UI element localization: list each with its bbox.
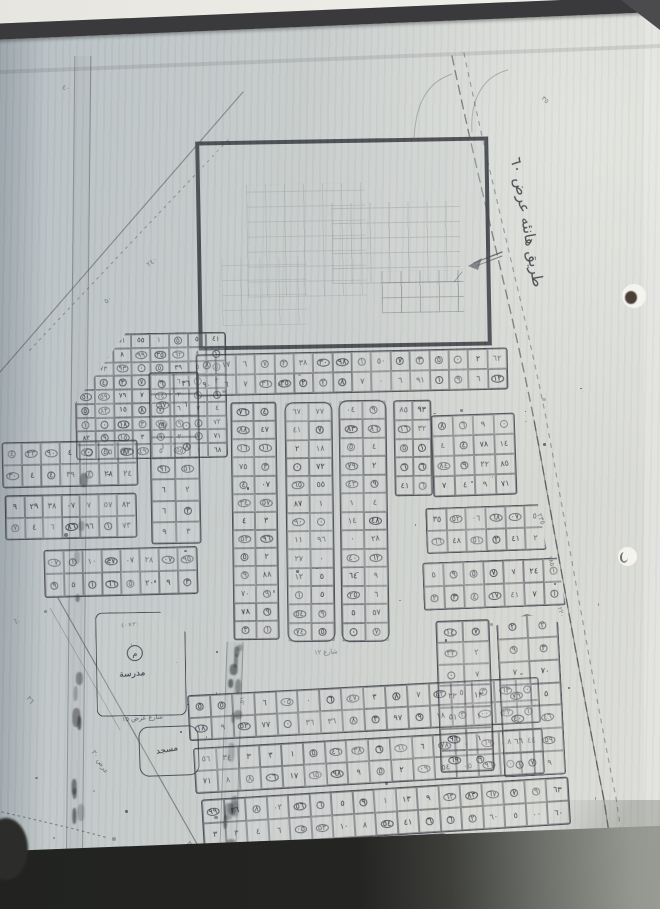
ink-speck bbox=[154, 580, 156, 583]
ink-speck bbox=[296, 570, 299, 573]
ink-speck bbox=[206, 736, 207, 738]
ink-specks-layer bbox=[0, 0, 660, 909]
ink-speck bbox=[112, 837, 116, 841]
ink-speck bbox=[460, 409, 463, 412]
ink-speck bbox=[433, 413, 436, 414]
ink-speck bbox=[131, 643, 132, 647]
ink-speck bbox=[216, 651, 218, 653]
ink-speck bbox=[356, 572, 359, 573]
ink-speck bbox=[471, 481, 473, 483]
ink-speck bbox=[580, 388, 582, 389]
ink-speck bbox=[385, 782, 388, 785]
scanned-subdivision-plan-photo: م مدرسة شارع عرض ١٥ مسجد طريق هانئه عرض … bbox=[0, 0, 660, 909]
ink-speck bbox=[525, 421, 527, 422]
ink-speck bbox=[93, 790, 95, 792]
ink-speck bbox=[492, 476, 493, 478]
ink-speck bbox=[445, 639, 447, 642]
ink-speck bbox=[273, 590, 275, 593]
punch-hole-top bbox=[622, 284, 646, 308]
ink-speck bbox=[415, 524, 416, 526]
ink-speck bbox=[222, 390, 226, 393]
ink-speck bbox=[520, 673, 523, 675]
ink-speck bbox=[44, 610, 47, 613]
ink-speck bbox=[216, 692, 217, 695]
ink-speck bbox=[107, 474, 110, 475]
ink-speck bbox=[247, 487, 249, 490]
ink-speck bbox=[525, 411, 526, 412]
ink-speck bbox=[542, 398, 546, 401]
punch-hole-bottom bbox=[618, 547, 637, 566]
ink-speck bbox=[109, 559, 111, 561]
ink-speck bbox=[543, 443, 546, 446]
ink-speck bbox=[176, 662, 177, 663]
ink-speck bbox=[278, 383, 281, 386]
ink-speck bbox=[125, 810, 128, 813]
ink-speck bbox=[316, 568, 318, 569]
ink-speck bbox=[554, 583, 556, 585]
ink-speck bbox=[214, 816, 218, 819]
ink-speck bbox=[598, 603, 599, 606]
ink-speck bbox=[298, 374, 301, 376]
ink-speck bbox=[184, 550, 187, 552]
ink-speck bbox=[490, 623, 493, 626]
ink-speck bbox=[187, 704, 189, 705]
ink-speck bbox=[64, 533, 68, 537]
ink-speck bbox=[568, 687, 570, 689]
ink-speck bbox=[35, 777, 38, 779]
ink-speck bbox=[180, 731, 182, 733]
ink-speck bbox=[399, 600, 401, 601]
ink-speck bbox=[106, 561, 108, 563]
ink-speck bbox=[53, 837, 55, 839]
